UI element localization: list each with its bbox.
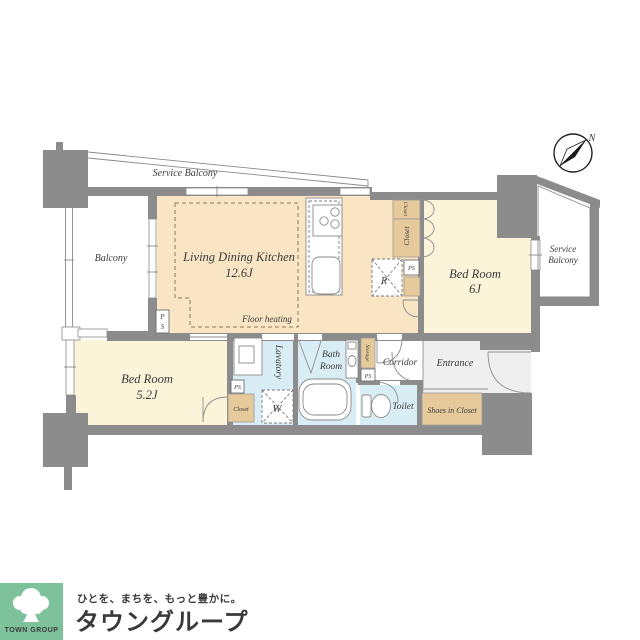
lavatory-label: Lavatory [273,344,283,380]
service-balcony-right-label1: Service [550,244,576,254]
corridor-door-opening [377,334,402,340]
bedroom2-window [66,340,74,395]
brand-text: タウングループ [75,609,249,636]
pillar-top-left [43,150,88,208]
closet-mid-label: Closet [402,226,411,246]
ps-ldk-label-p: P [159,313,165,321]
bedroom2-size-label: 5.2J [136,388,159,402]
bathroom-label2: Room [319,362,342,372]
bedroom1-label: Bed Room [449,267,501,281]
ldk-size-label: 12.6J [225,266,254,280]
entrance-door-opening [531,352,540,393]
bedroom1-size-label: 6J [469,282,482,296]
toilet-label: Toilet [392,402,414,412]
bathtub [299,379,351,420]
service-balcony-right-label2: Balcony [548,255,578,265]
pillar-top-right [497,175,537,238]
pillar-bottom-left [43,413,88,467]
stove-burner [320,217,328,225]
compass: N [554,133,597,172]
kitchen-sink [312,257,340,294]
service-balcony-top-label: Service Balcony [153,168,218,179]
pillar-bottom-right [482,393,532,455]
service-balcony-right-floor [538,186,590,297]
kitchen-top-window [340,188,370,195]
ps-ldk-label-s: S [161,323,165,331]
floor-heating-label: Floor heating [241,314,292,324]
ps-kitchen-label: PS [407,266,415,272]
compass-north-label: N [588,133,597,144]
bedroom2-closet-label: Closet [233,407,249,413]
entrance-label: Entrance [436,358,474,369]
storage-label: Storage [364,344,370,362]
footer: TOWN GROUP ひとを、まちを、もっと豊かに。 タウングループ [0,583,249,640]
lavatory-opening [262,334,294,340]
bedroom2-label: Bed Room [121,372,173,386]
washer-label: W [272,403,282,415]
ldk-label: Living Dining Kitchen [182,250,295,264]
bathroom-door-opening [298,334,322,340]
logo-text: TOWN GROUP [5,627,59,634]
stove-burner [331,220,339,228]
ps-corridor-label: PS [364,374,372,380]
ps-lavatory-label: PS [233,385,241,391]
balcony-floor [66,208,148,330]
small-storage-box [404,277,420,296]
floorplan-drawing: Service Balcony Balcony Living Dining Ki… [0,0,640,640]
refrigerator-label: R [380,276,387,287]
floorplan-page: Service Balcony Balcony Living Dining Ki… [0,0,640,640]
bathroom-label1: Bath [322,350,340,360]
corridor-label: Corridor [383,358,418,368]
tagline-text: ひとを、まちを、もっと豊かに。 [77,592,242,605]
shoes-closet-label: Shoes in Closet [427,406,477,415]
vanity-basin [239,346,254,363]
toilet-bowl [372,395,391,418]
stove-burner [331,208,339,216]
closet-top-label: Closet [402,202,408,217]
toilet-tank [362,395,371,417]
kitchen [306,198,342,295]
balcony-label: Balcony [95,253,128,264]
bath-basin [348,356,356,367]
balcony-window [149,219,156,298]
